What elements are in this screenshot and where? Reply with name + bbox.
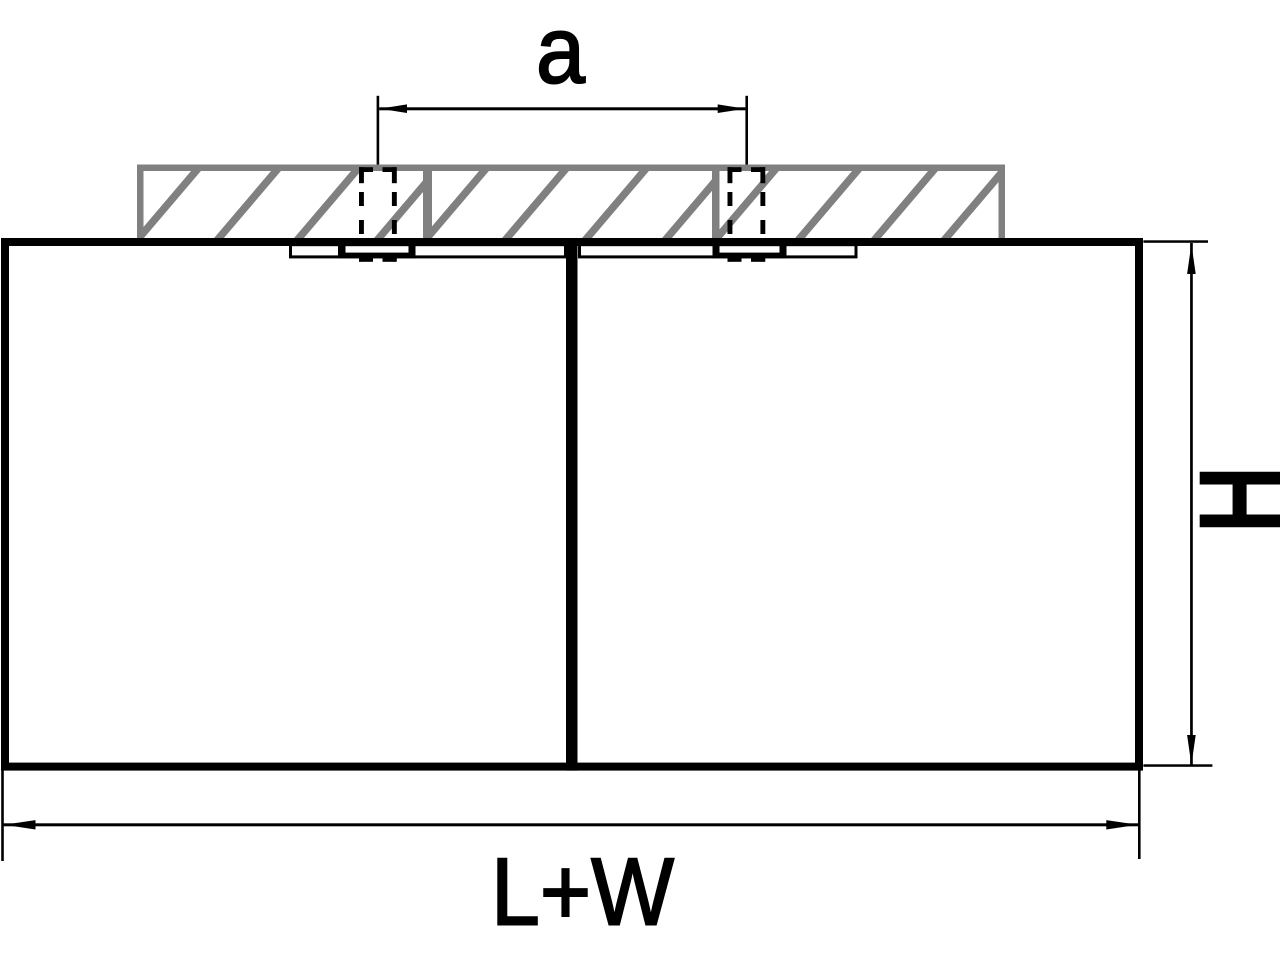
svg-text:H: H <box>1178 466 1280 532</box>
svg-text:L+W: L+W <box>491 839 674 946</box>
svg-text:a: a <box>536 0 585 103</box>
